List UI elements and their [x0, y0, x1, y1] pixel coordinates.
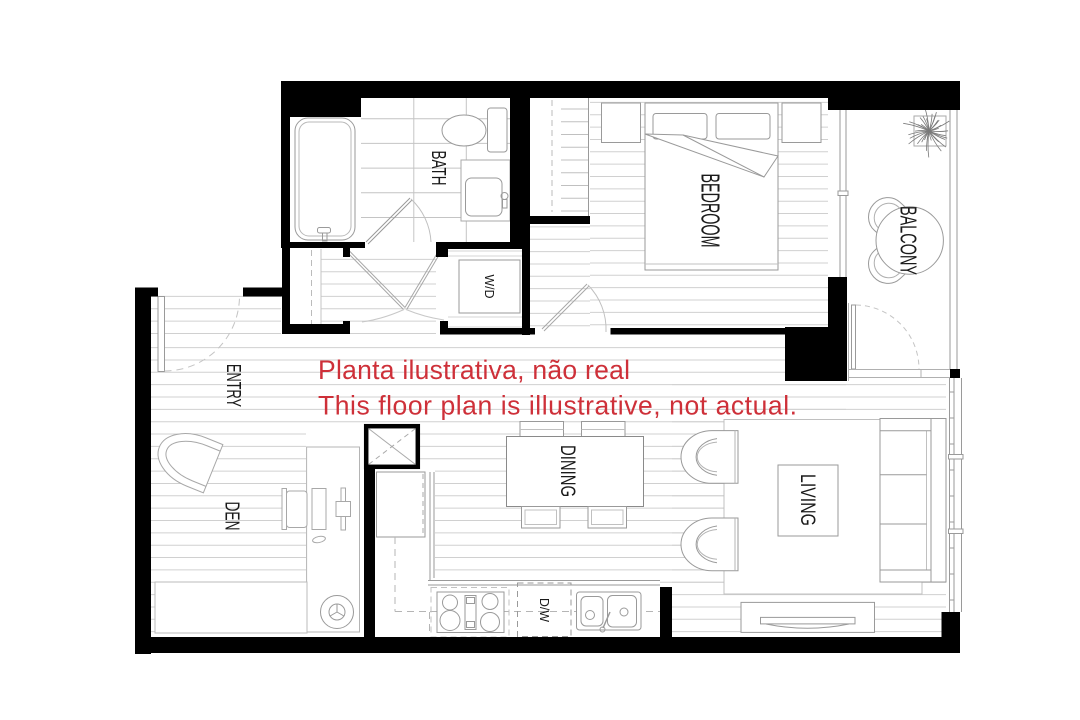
svg-text:Planta ilustrativa, não real: Planta ilustrativa, não real	[318, 355, 630, 385]
svg-text:DEN: DEN	[221, 502, 243, 531]
svg-text:BATH: BATH	[427, 151, 449, 186]
svg-text:ENTRY: ENTRY	[222, 364, 244, 407]
svg-text:LIVING: LIVING	[796, 474, 819, 526]
svg-text:This floor plan is illustrativ: This floor plan is illustrative, not act…	[318, 391, 797, 421]
svg-text:W/D: W/D	[482, 275, 497, 299]
svg-text:BALCONY: BALCONY	[896, 206, 922, 275]
svg-text:BEDROOM: BEDROOM	[696, 174, 726, 248]
svg-text:DINING: DINING	[556, 445, 579, 497]
svg-text:D/W: D/W	[537, 598, 552, 623]
